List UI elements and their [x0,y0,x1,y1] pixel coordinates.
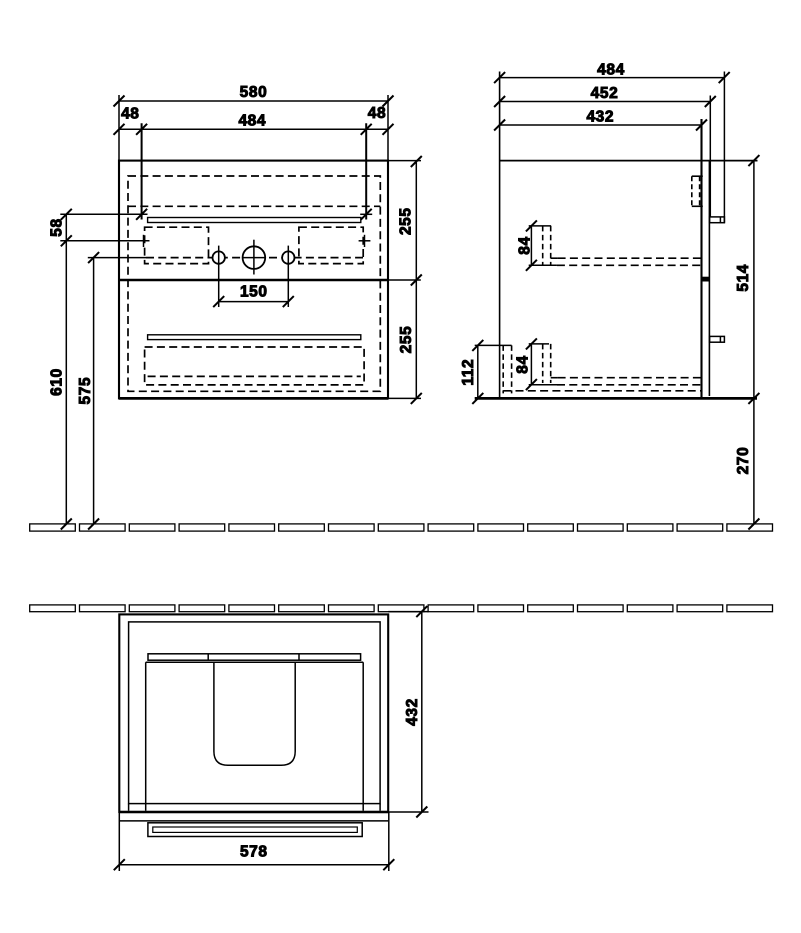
svg-text:255: 255 [398,326,415,354]
svg-text:112: 112 [460,359,477,386]
svg-text:580: 580 [240,84,268,101]
svg-text:514: 514 [735,264,752,292]
svg-text:84: 84 [517,236,534,254]
svg-text:432: 432 [586,108,614,125]
svg-text:432: 432 [404,698,421,726]
svg-text:255: 255 [397,207,414,235]
svg-text:48: 48 [121,106,139,123]
svg-text:48: 48 [368,105,386,122]
svg-text:452: 452 [591,85,619,102]
svg-text:578: 578 [240,844,268,861]
svg-text:484: 484 [597,61,625,78]
svg-text:58: 58 [49,218,66,236]
svg-text:150: 150 [240,284,268,301]
svg-text:484: 484 [238,112,266,129]
svg-text:270: 270 [735,447,752,475]
svg-text:610: 610 [49,368,66,396]
svg-text:575: 575 [77,377,94,405]
svg-text:84: 84 [515,355,532,373]
